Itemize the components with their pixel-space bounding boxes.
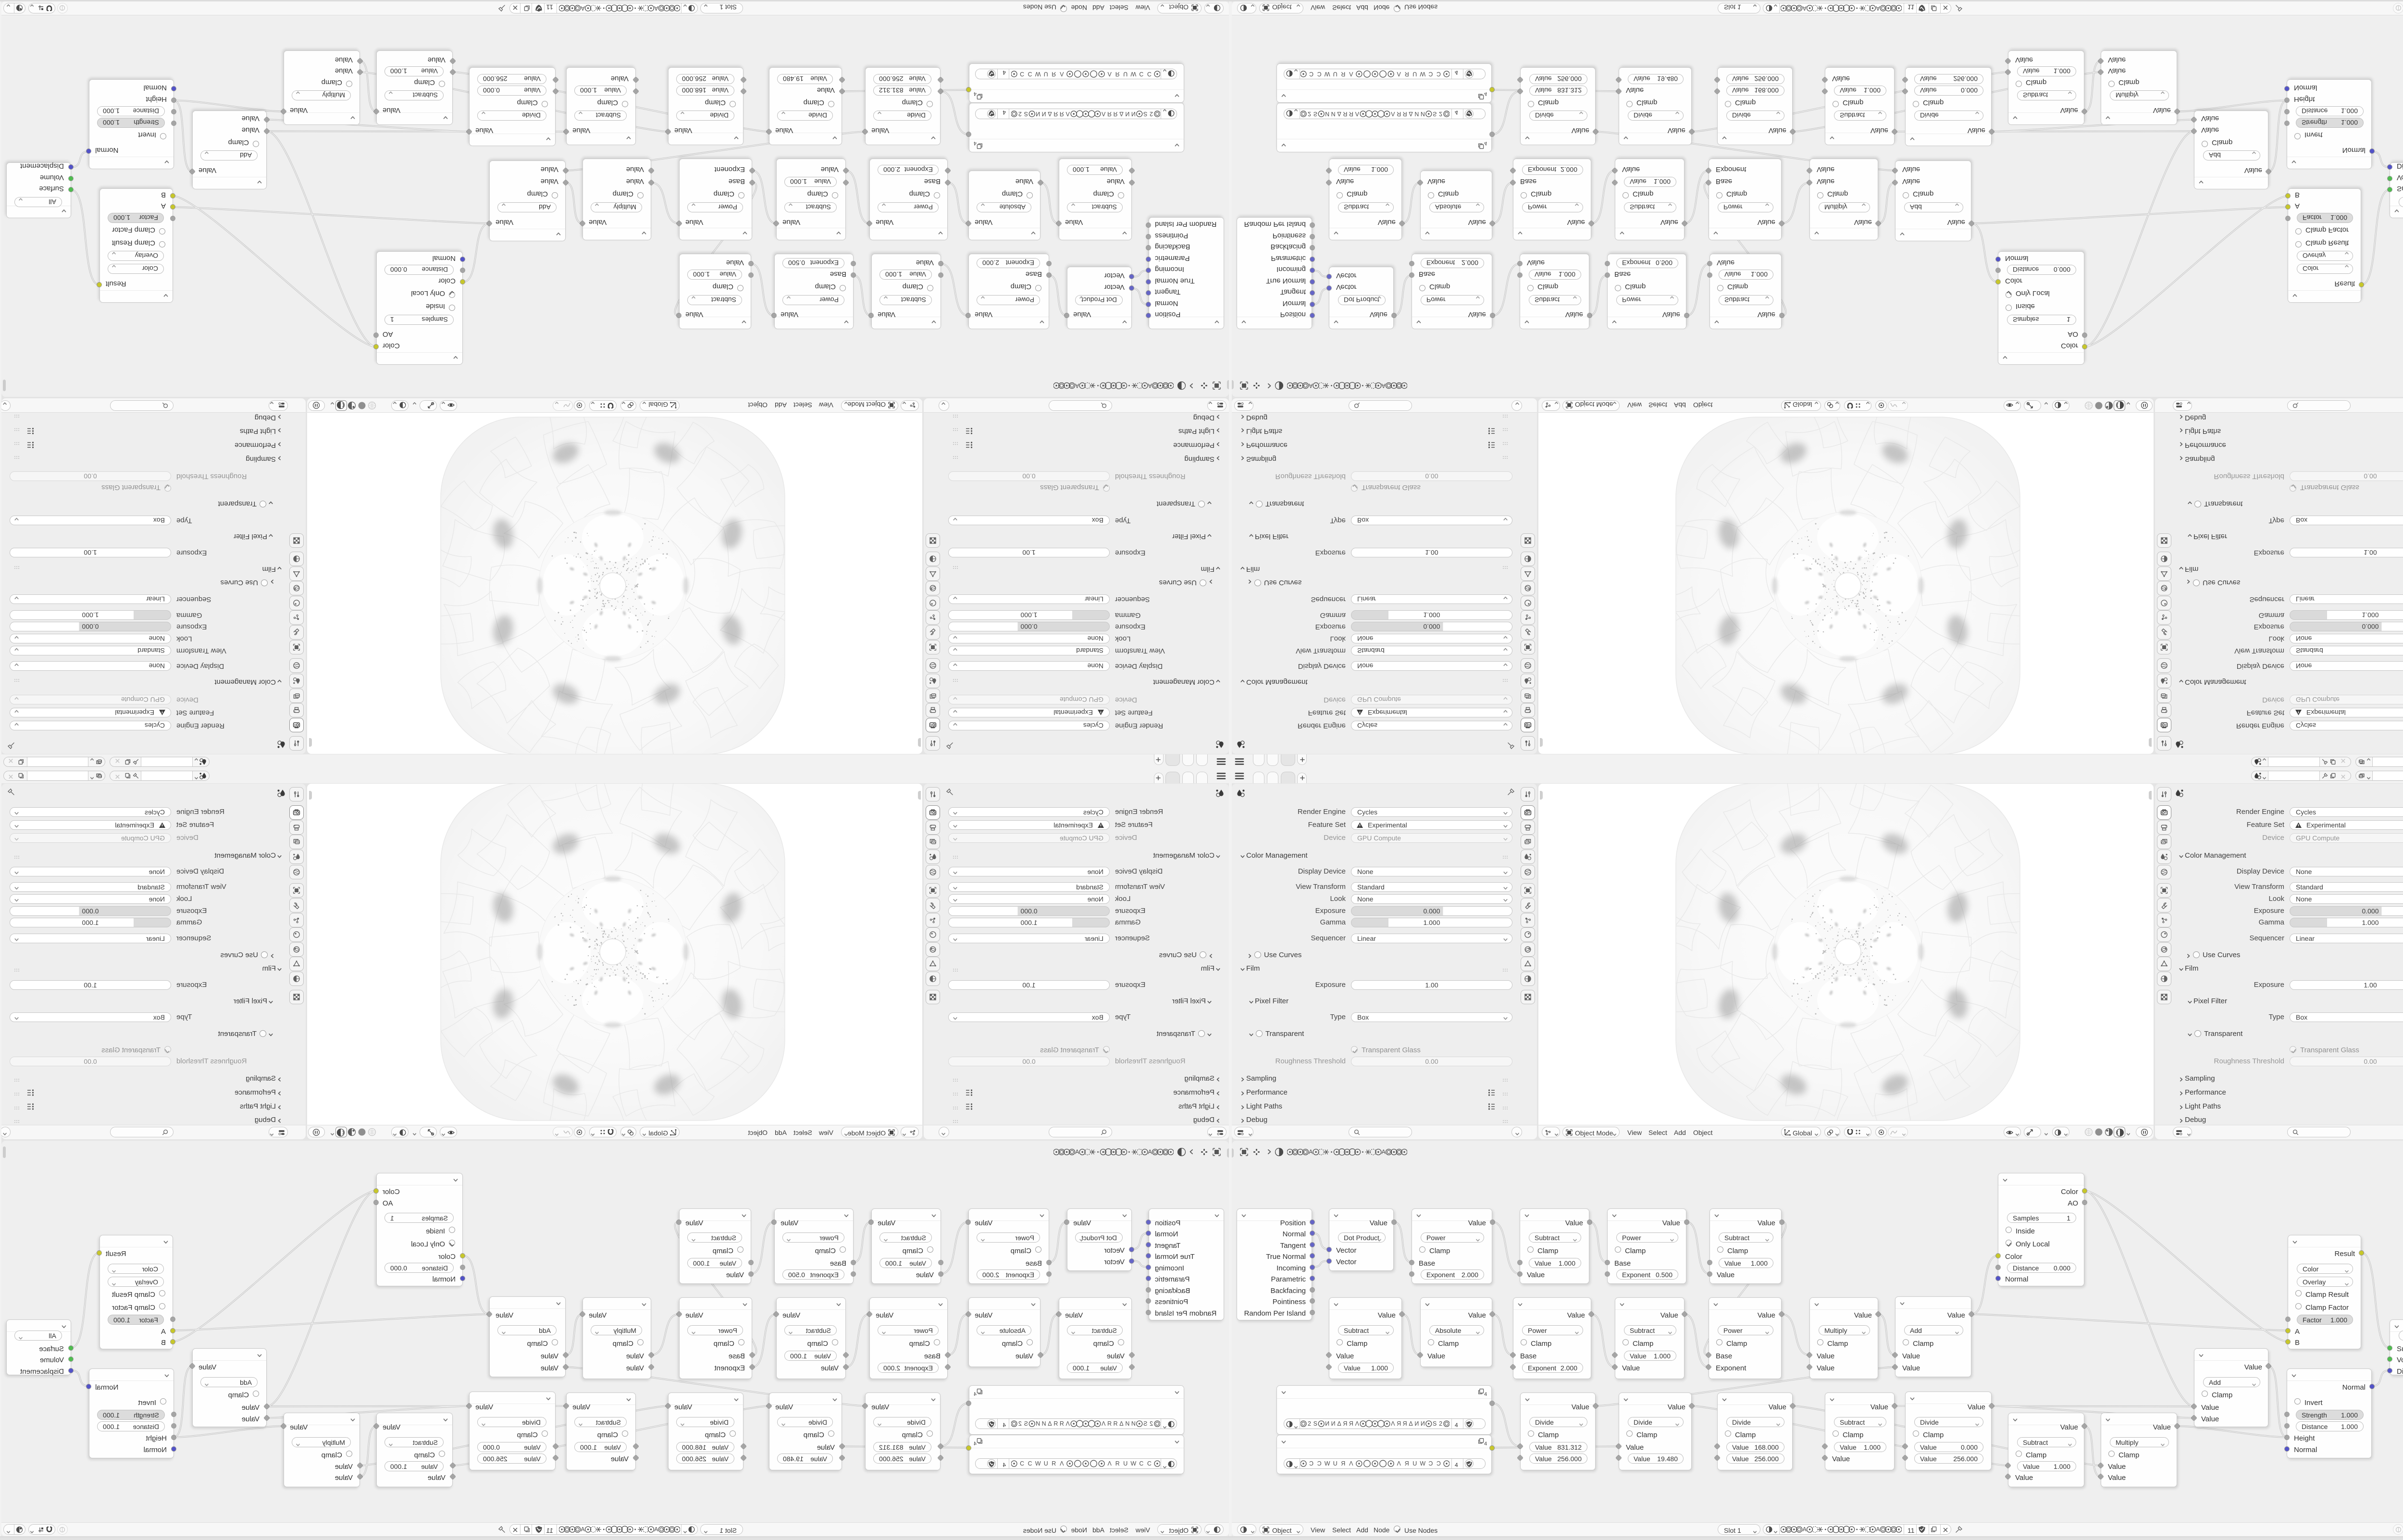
svg-text:A: A xyxy=(1382,1149,1386,1156)
svg-text:Я: Я xyxy=(1349,1420,1353,1427)
svg-text:S: S xyxy=(1433,1420,1437,1427)
svg-text:A: A xyxy=(1802,1526,1807,1533)
svg-text:Λ: Λ xyxy=(1355,1420,1360,1427)
svg-text:2: 2 xyxy=(1308,1420,1311,1427)
svg-text:Λ: Λ xyxy=(1391,1420,1395,1427)
svg-text:Ɔ: Ɔ xyxy=(1309,1460,1313,1467)
svg-text:Я: Я xyxy=(1403,1420,1407,1427)
svg-text:Δ: Δ xyxy=(1337,1420,1341,1427)
svg-text:A: A xyxy=(1309,1149,1313,1156)
svg-text:И: И xyxy=(1414,1420,1419,1427)
svg-text:И: И xyxy=(1331,1420,1336,1427)
svg-text:W: W xyxy=(1325,1460,1330,1467)
svg-text:S: S xyxy=(1313,1420,1317,1427)
svg-text:И: И xyxy=(1421,1420,1425,1427)
svg-text:Ɔ: Ɔ xyxy=(1428,1460,1433,1467)
svg-text:Я: Я xyxy=(1397,1420,1401,1427)
svg-text:U: U xyxy=(1412,1460,1417,1467)
svg-text:Я: Я xyxy=(1405,1460,1409,1467)
svg-text:U: U xyxy=(1333,1460,1338,1467)
svg-text:W: W xyxy=(1420,1460,1425,1467)
svg-text:2: 2 xyxy=(1439,1420,1442,1427)
svg-text:Ɔ: Ɔ xyxy=(1437,1460,1441,1467)
svg-text:Δ: Δ xyxy=(1409,1420,1412,1427)
svg-text:Λ: Λ xyxy=(1397,1460,1401,1467)
svg-text:Я: Я xyxy=(1341,1460,1345,1467)
svg-text:И: И xyxy=(1325,1420,1329,1427)
svg-text:Ɔ: Ɔ xyxy=(1317,1460,1322,1467)
svg-text:Я: Я xyxy=(1343,1420,1347,1427)
svg-text:A: A xyxy=(1876,1526,1880,1533)
svg-text:Λ: Λ xyxy=(1349,1460,1353,1467)
